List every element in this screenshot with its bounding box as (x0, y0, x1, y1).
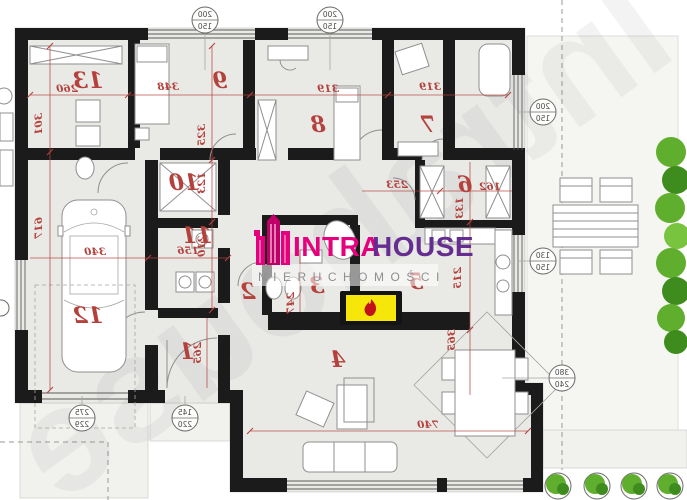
dim-365: 365 (446, 329, 458, 351)
wardrobe-icon (30, 46, 122, 64)
svg-text:215: 215 (452, 266, 464, 289)
svg-text:150: 150 (323, 22, 338, 31)
table-icon (442, 350, 528, 436)
svg-text:6: 6 (457, 172, 472, 198)
floor-plan-svg: Intrahouse (0, 0, 687, 500)
svg-text:200: 200 (536, 102, 551, 111)
svg-text:319: 319 (418, 81, 441, 93)
svg-text:340: 340 (83, 246, 106, 258)
svg-text:7: 7 (420, 112, 436, 138)
logo-intra: INTRA (293, 231, 381, 262)
svg-text:617: 617 (33, 217, 45, 240)
svg-text:4: 4 (330, 347, 345, 373)
dim-319b: 319 (418, 81, 441, 93)
svg-text:229: 229 (75, 420, 90, 429)
dim-319a: 319 (316, 83, 339, 95)
garden-path (543, 430, 687, 468)
bed-icon (334, 86, 360, 160)
svg-text:301: 301 (33, 113, 45, 135)
svg-text:10: 10 (168, 170, 199, 196)
svg-text:253: 253 (386, 179, 409, 191)
svg-text:150: 150 (536, 114, 551, 123)
svg-text:9: 9 (212, 68, 227, 94)
svg-text:265: 265 (192, 341, 204, 364)
svg-text:150: 150 (536, 263, 551, 272)
car-icon (58, 200, 130, 372)
room-label-9: 9 (212, 68, 227, 94)
dim-617: 617 (33, 217, 45, 240)
dim-340: 340 (83, 246, 106, 258)
dim-325: 325 (196, 124, 208, 146)
svg-text:240: 240 (555, 380, 570, 389)
svg-text:260: 260 (55, 83, 79, 95)
toilet-icon (76, 157, 94, 179)
svg-text:275: 275 (75, 408, 90, 417)
room-label-8: 8 (310, 112, 326, 138)
svg-text:8: 8 (310, 112, 326, 138)
bush-icon (657, 473, 683, 499)
room-label-10: 10 (168, 170, 199, 196)
dim-348: 348 (156, 81, 179, 93)
svg-text:380: 380 (555, 368, 570, 377)
dim-247: 247 (285, 291, 297, 315)
dim-215: 215 (452, 266, 464, 289)
room-label-4: 4 (330, 347, 345, 373)
svg-text:145: 145 (178, 408, 193, 417)
svg-text:740: 740 (416, 419, 439, 431)
svg-text:365: 365 (446, 329, 458, 351)
svg-text:162: 162 (479, 181, 501, 193)
bush-row (545, 473, 683, 499)
logo-subtitle: NIERUCHOMOŚCI (258, 269, 446, 284)
bathtub-icon (479, 44, 510, 96)
dim-162: 162 (479, 181, 501, 193)
desk-icon (398, 142, 438, 156)
svg-text:348: 348 (156, 81, 179, 93)
dim-133: 133 (454, 197, 466, 219)
dim-740: 740 (416, 419, 439, 431)
desk-icon (268, 46, 308, 60)
svg-text:210: 210 (196, 234, 208, 258)
fireplace-badge (340, 291, 402, 325)
logo-house: HOUSE (372, 231, 474, 262)
room-label-12: 12 (73, 303, 104, 329)
svg-text:220: 220 (178, 420, 193, 429)
dim-123: 123 (196, 172, 208, 194)
floor-plan-screenshot: Intrahouse (0, 0, 687, 500)
svg-text:200: 200 (198, 10, 213, 19)
bush-icon (545, 473, 571, 499)
svg-text:319: 319 (316, 83, 339, 95)
room-label-6: 6 (457, 172, 472, 198)
cabinet-icon (76, 126, 100, 146)
svg-text:150: 150 (198, 22, 213, 31)
svg-text:123: 123 (196, 172, 208, 194)
svg-text:12: 12 (73, 303, 104, 329)
bush-icon (621, 473, 647, 499)
svg-text:247: 247 (285, 291, 297, 315)
dim-265: 265 (192, 341, 204, 364)
wardrobe-icon (258, 100, 276, 160)
svg-text:200: 200 (323, 10, 338, 19)
svg-text:133: 133 (454, 197, 466, 219)
dim-301: 301 (33, 113, 45, 135)
bush-icon (584, 473, 610, 499)
room-label-7: 7 (420, 112, 436, 138)
dim-210: 210 (196, 234, 208, 258)
kitchen-counter (495, 230, 512, 315)
left-outside-fixtures (0, 88, 13, 316)
dim-260: 260 (55, 83, 79, 95)
washer-icon (76, 100, 100, 122)
svg-text:130: 130 (536, 251, 551, 260)
svg-text:325: 325 (196, 124, 208, 146)
dim-253: 253 (386, 179, 409, 191)
